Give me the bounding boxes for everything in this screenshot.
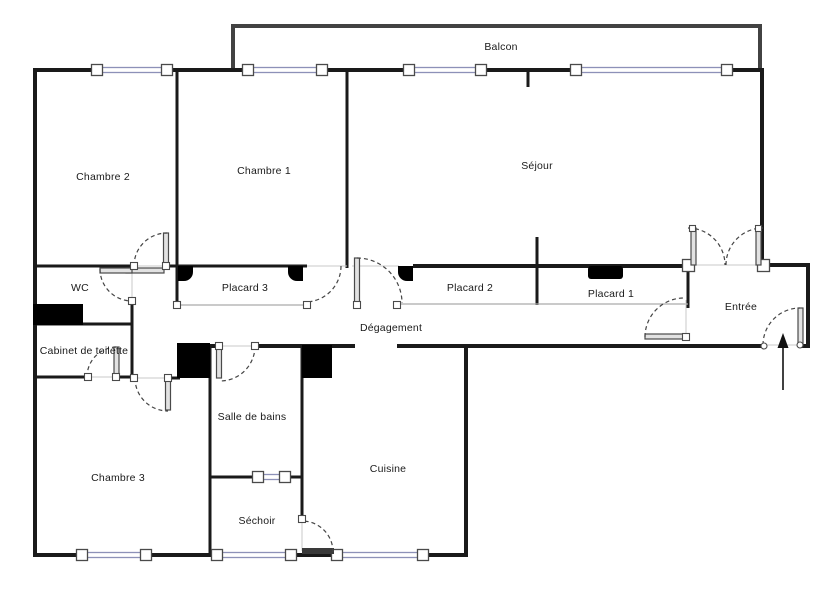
windows <box>77 65 770 561</box>
floor-plan-canvas <box>0 0 840 595</box>
room-label-entree: Entrée <box>725 302 757 313</box>
closet-front-lines <box>88 265 800 551</box>
closet2-corner <box>398 266 413 281</box>
room-label-chambre-3: Chambre 3 <box>91 473 145 484</box>
room-label-placard-1: Placard 1 <box>588 289 634 300</box>
outer-walls <box>33 68 810 557</box>
floor-plan: Balcon Chambre 2 Chambre 1 Séjour WC Pla… <box>0 0 840 595</box>
room-label-placard-3: Placard 3 <box>222 283 268 294</box>
room-label-balcon: Balcon <box>484 42 517 53</box>
room-label-cabinet-de-toilette: Cabinet de toilette <box>40 346 128 357</box>
entry-arrow-icon <box>778 333 789 390</box>
door-leaves <box>100 228 803 554</box>
closet3-corner-right <box>288 266 303 281</box>
room-label-cuisine: Cuisine <box>370 464 406 475</box>
bathroom-fixture <box>177 343 210 378</box>
room-label-placard-2: Placard 2 <box>447 283 493 294</box>
wc-fixture <box>33 304 83 325</box>
closet1-block <box>588 266 623 279</box>
interior-walls <box>33 70 688 557</box>
window-mullions <box>77 65 733 561</box>
room-label-wc: WC <box>71 283 89 294</box>
room-label-degagement: Dégagement <box>360 323 422 334</box>
kitchen-fixture <box>302 345 332 378</box>
room-label-sejour: Séjour <box>521 161 553 172</box>
room-label-chambre-1: Chambre 1 <box>237 166 291 177</box>
closet3-corner-left <box>178 266 193 281</box>
room-label-chambre-2: Chambre 2 <box>76 172 130 183</box>
room-label-sechoir: Séchoir <box>238 516 275 527</box>
door-swing-arcs <box>87 228 800 552</box>
room-label-salle-de-bains: Salle de bains <box>218 412 287 423</box>
fixtures <box>33 266 623 378</box>
